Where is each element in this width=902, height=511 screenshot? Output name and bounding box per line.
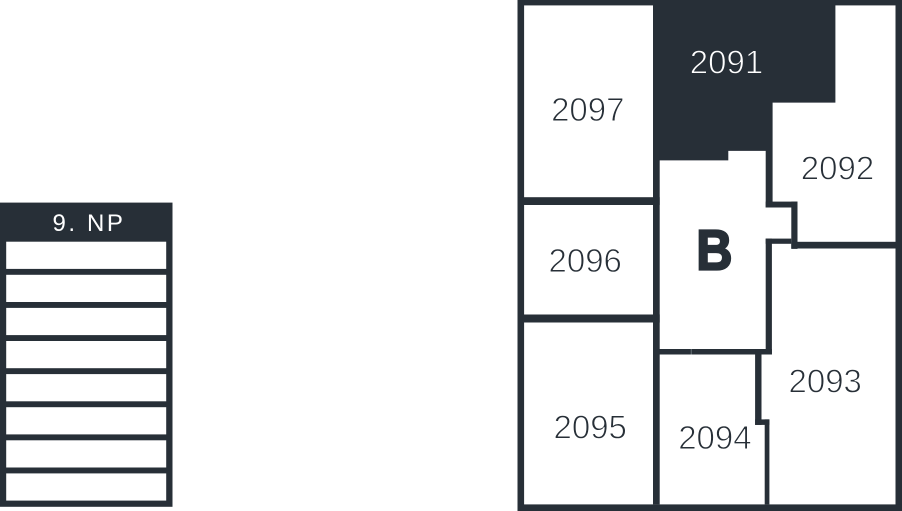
svg-text:2092: 2092 [801, 150, 874, 187]
svg-text:2091: 2091 [690, 44, 763, 81]
svg-text:9. NP: 9. NP [52, 210, 125, 237]
svg-text:B: B [696, 219, 732, 283]
svg-text:2094: 2094 [678, 419, 751, 456]
svg-text:2097: 2097 [551, 91, 624, 128]
svg-text:2095: 2095 [553, 409, 626, 446]
svg-text:2096: 2096 [548, 242, 621, 279]
svg-text:2093: 2093 [788, 362, 861, 399]
